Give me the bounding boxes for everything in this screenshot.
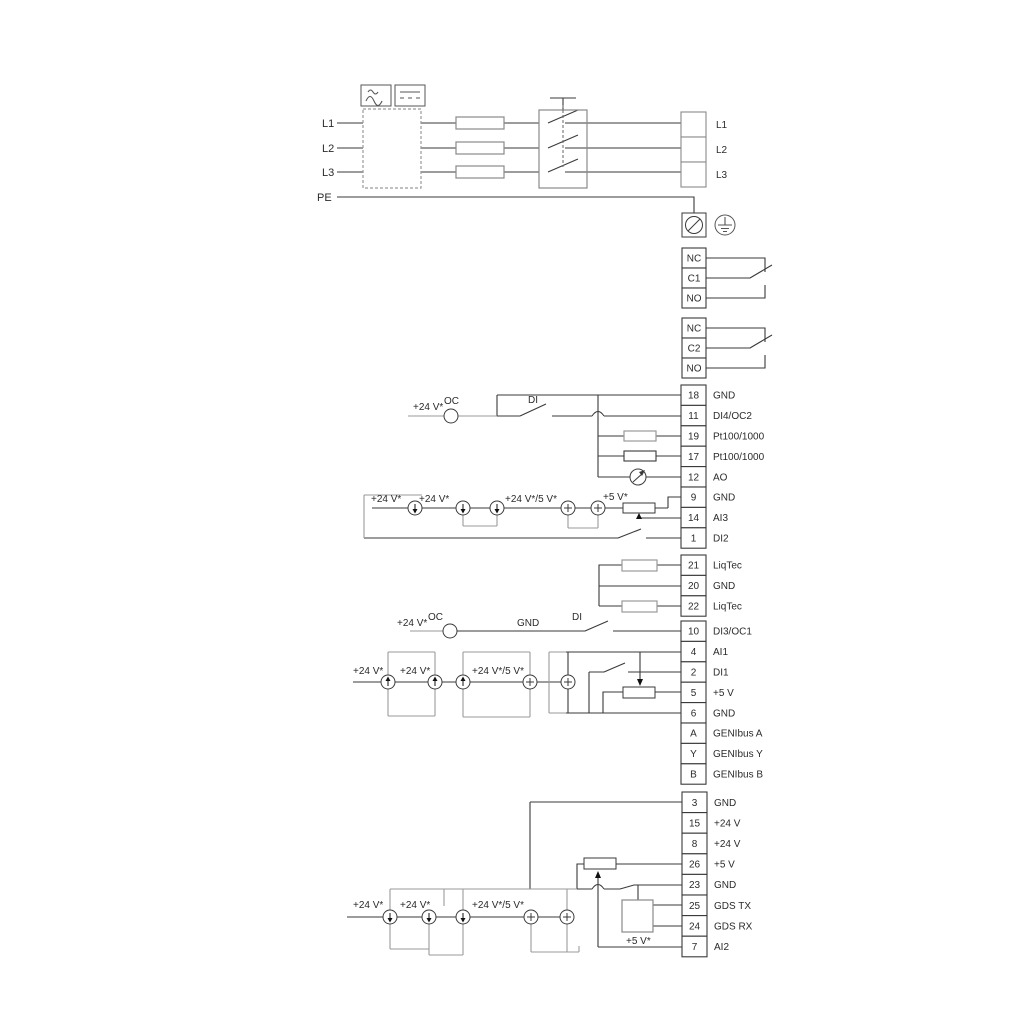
terminal-number: 20 xyxy=(688,581,700,592)
liqtec-sensor-2 xyxy=(622,601,657,612)
annotation-label: +24 V* xyxy=(413,402,443,413)
terminal-number: 24 xyxy=(689,921,701,932)
terminal-block-relay1: NCC1NO xyxy=(682,248,706,308)
terminal-label: +5 V xyxy=(714,860,735,871)
terminal-label: GDS RX xyxy=(714,921,753,932)
annotation-label: DI xyxy=(572,612,582,623)
terminal-number: 15 xyxy=(689,818,701,829)
terminal-number: 4 xyxy=(691,647,697,658)
current-source-symbol xyxy=(456,910,470,924)
current-source-symbol xyxy=(428,675,442,689)
terminal-number: 21 xyxy=(688,561,700,572)
current-source-symbol xyxy=(561,675,575,689)
annotation-label: OC xyxy=(428,612,443,623)
terminal-label: GND xyxy=(713,708,735,719)
terminal-number: 22 xyxy=(688,602,700,613)
annotation-label: L3 xyxy=(322,167,334,179)
pt100-resistor-2 xyxy=(624,451,656,461)
terminal-label: GND xyxy=(713,493,735,504)
current-source-symbol xyxy=(561,501,575,515)
relay-contact-label: NO xyxy=(687,294,702,305)
terminal-block-relay2: NCC2NO xyxy=(682,318,706,378)
terminal-number: 26 xyxy=(689,860,701,871)
current-source-symbol xyxy=(456,501,470,515)
terminal-number: Y xyxy=(690,749,697,760)
current-source-symbol xyxy=(524,910,538,924)
dc-icon-box xyxy=(395,85,425,106)
annotation-label: L1 xyxy=(322,118,334,130)
annotation-label: +24 V*/5 V* xyxy=(472,900,524,911)
annotation-label: L2 xyxy=(322,143,334,155)
terminal-cell xyxy=(681,162,706,187)
terminal-cell xyxy=(681,137,706,162)
terminal-block-tb_power: L1L2L3 xyxy=(681,112,728,187)
oc-circle-di3 xyxy=(443,624,457,638)
annotation-label: OC xyxy=(444,396,459,407)
oc-circle-di4 xyxy=(444,409,458,423)
terminal-number: A xyxy=(690,729,697,740)
annotation-label: DI xyxy=(528,395,538,406)
ai2-wiper-arrow xyxy=(595,871,601,878)
current-source-symbol xyxy=(560,910,574,924)
terminal-label: Pt100/1000 xyxy=(713,432,765,443)
terminal-label: AI1 xyxy=(713,647,728,658)
terminal-number: 12 xyxy=(688,472,700,483)
terminal-number: 17 xyxy=(688,452,700,463)
annotation-label: +24 V* xyxy=(397,618,427,629)
ai1-wiper-arrow xyxy=(637,679,643,686)
current-source-symbol xyxy=(383,910,397,924)
relay-contact-label: NC xyxy=(687,254,701,265)
annotation-label: GND xyxy=(517,618,539,629)
annotation-label: +5 V* xyxy=(626,936,651,947)
diagram-labels: L1L2L3PE+24 V*+24 V*+24 V*/5 V*+5 V*+24 … xyxy=(317,118,651,947)
terminal-label: +24 V xyxy=(714,818,741,829)
terminal-number: B xyxy=(690,770,697,781)
terminal-number: 23 xyxy=(689,880,701,891)
gds-sensor-box xyxy=(622,900,653,932)
current-source-symbol xyxy=(523,675,537,689)
terminal-number: 7 xyxy=(692,942,698,953)
ai3-wiper-arrow xyxy=(636,513,642,519)
annotation-label: +24 V* xyxy=(353,666,383,677)
annotation-label: +24 V* xyxy=(400,666,430,677)
terminal-label: GENIbus B xyxy=(713,770,763,781)
terminal-number: 14 xyxy=(688,513,700,524)
ai1-potentiometer xyxy=(623,687,655,698)
terminal-label: AI3 xyxy=(713,513,728,524)
relay-contact-label: C1 xyxy=(688,274,701,285)
terminal-label: DI2 xyxy=(713,534,729,545)
terminal-block-io2: 10DI3/OC14AI12DI15+5 V6GNDAGENIbus AYGEN… xyxy=(681,621,763,784)
terminal-label: DI4/OC2 xyxy=(713,411,752,422)
annotation-label: +24 V*/5 V* xyxy=(472,666,524,677)
terminal-label: L2 xyxy=(716,145,728,156)
current-source-symbol xyxy=(591,501,605,515)
terminal-label: LiqTec xyxy=(713,602,742,613)
terminal-block-liqtec: 21LiqTec20GND22LiqTec xyxy=(681,555,742,616)
terminal-number: 1 xyxy=(691,534,697,545)
relay-contact-label: NO xyxy=(687,364,702,375)
annotation-label: +24 V*/5 V* xyxy=(505,494,557,505)
terminal-label: DI3/OC1 xyxy=(713,627,752,638)
terminal-label: AO xyxy=(713,472,728,483)
terminal-label: +5 V xyxy=(713,688,734,699)
current-source-symbol xyxy=(381,675,395,689)
terminal-label: L1 xyxy=(716,120,728,131)
ai2-potentiometer xyxy=(584,858,616,869)
terminal-number: 11 xyxy=(688,411,699,422)
relay-contact-label: NC xyxy=(687,324,701,335)
wiring-diagram: L1L2L3NCC1NONCC2NO18GND11DI4/OC219Pt100/… xyxy=(0,0,1024,1024)
annotation-label: +24 V* xyxy=(371,494,401,505)
terminal-label: GENIbus A xyxy=(713,729,763,740)
terminal-label: GND xyxy=(714,798,736,809)
terminal-number: 3 xyxy=(692,798,698,809)
current-source-symbol xyxy=(490,501,504,515)
annotation-label: +24 V* xyxy=(353,900,383,911)
terminal-label: GENIbus Y xyxy=(713,749,763,760)
terminal-number: 5 xyxy=(691,688,697,699)
terminal-cell xyxy=(681,112,706,137)
terminal-blocks: L1L2L3NCC1NONCC2NO18GND11DI4/OC219Pt100/… xyxy=(681,112,765,957)
terminal-label: Pt100/1000 xyxy=(713,452,765,463)
annotation-label: +24 V* xyxy=(419,494,449,505)
terminal-label: L3 xyxy=(716,170,728,181)
annotation-label: +5 V* xyxy=(603,492,628,503)
fuse-l1 xyxy=(456,117,504,129)
terminal-number: 2 xyxy=(691,668,697,679)
terminal-number: 10 xyxy=(688,627,700,638)
wiring-diagram-page: L1L2L3NCC1NONCC2NO18GND11DI4/OC219Pt100/… xyxy=(0,0,1024,1024)
terminal-label: GND xyxy=(713,581,735,592)
terminal-label: AI2 xyxy=(714,942,729,953)
terminal-label: GND xyxy=(713,391,735,402)
annotation-label: +24 V* xyxy=(400,900,430,911)
liqtec-sensor-1 xyxy=(622,560,657,571)
terminal-number: 6 xyxy=(691,708,697,719)
terminal-number: 18 xyxy=(688,391,700,402)
fuse-l3 xyxy=(456,166,504,178)
terminal-block-io3: 3GND15+24 V8+24 V26+5 V23GND25GDS TX24GD… xyxy=(682,792,753,957)
terminal-label: LiqTec xyxy=(713,561,742,572)
annotation-label: PE xyxy=(317,192,332,204)
pt100-resistor-1 xyxy=(624,431,656,441)
current-source-symbol xyxy=(422,910,436,924)
ac-icon-box xyxy=(361,85,391,106)
current-source-symbol xyxy=(456,675,470,689)
terminal-number: 9 xyxy=(691,493,697,504)
relay-contact-label: C2 xyxy=(688,344,701,355)
terminal-label: GDS TX xyxy=(714,901,751,912)
fuse-l2 xyxy=(456,142,504,154)
terminal-number: 19 xyxy=(688,432,700,443)
terminal-label: GND xyxy=(714,880,736,891)
terminal-number: 25 xyxy=(689,901,701,912)
emc-filter-box xyxy=(363,109,421,188)
terminal-label: DI1 xyxy=(713,668,729,679)
terminal-number: 8 xyxy=(692,839,698,850)
terminal-block-io1: 18GND11DI4/OC219Pt100/100017Pt100/100012… xyxy=(681,385,765,548)
terminal-label: +24 V xyxy=(714,839,741,850)
ai3-potentiometer xyxy=(623,503,655,513)
